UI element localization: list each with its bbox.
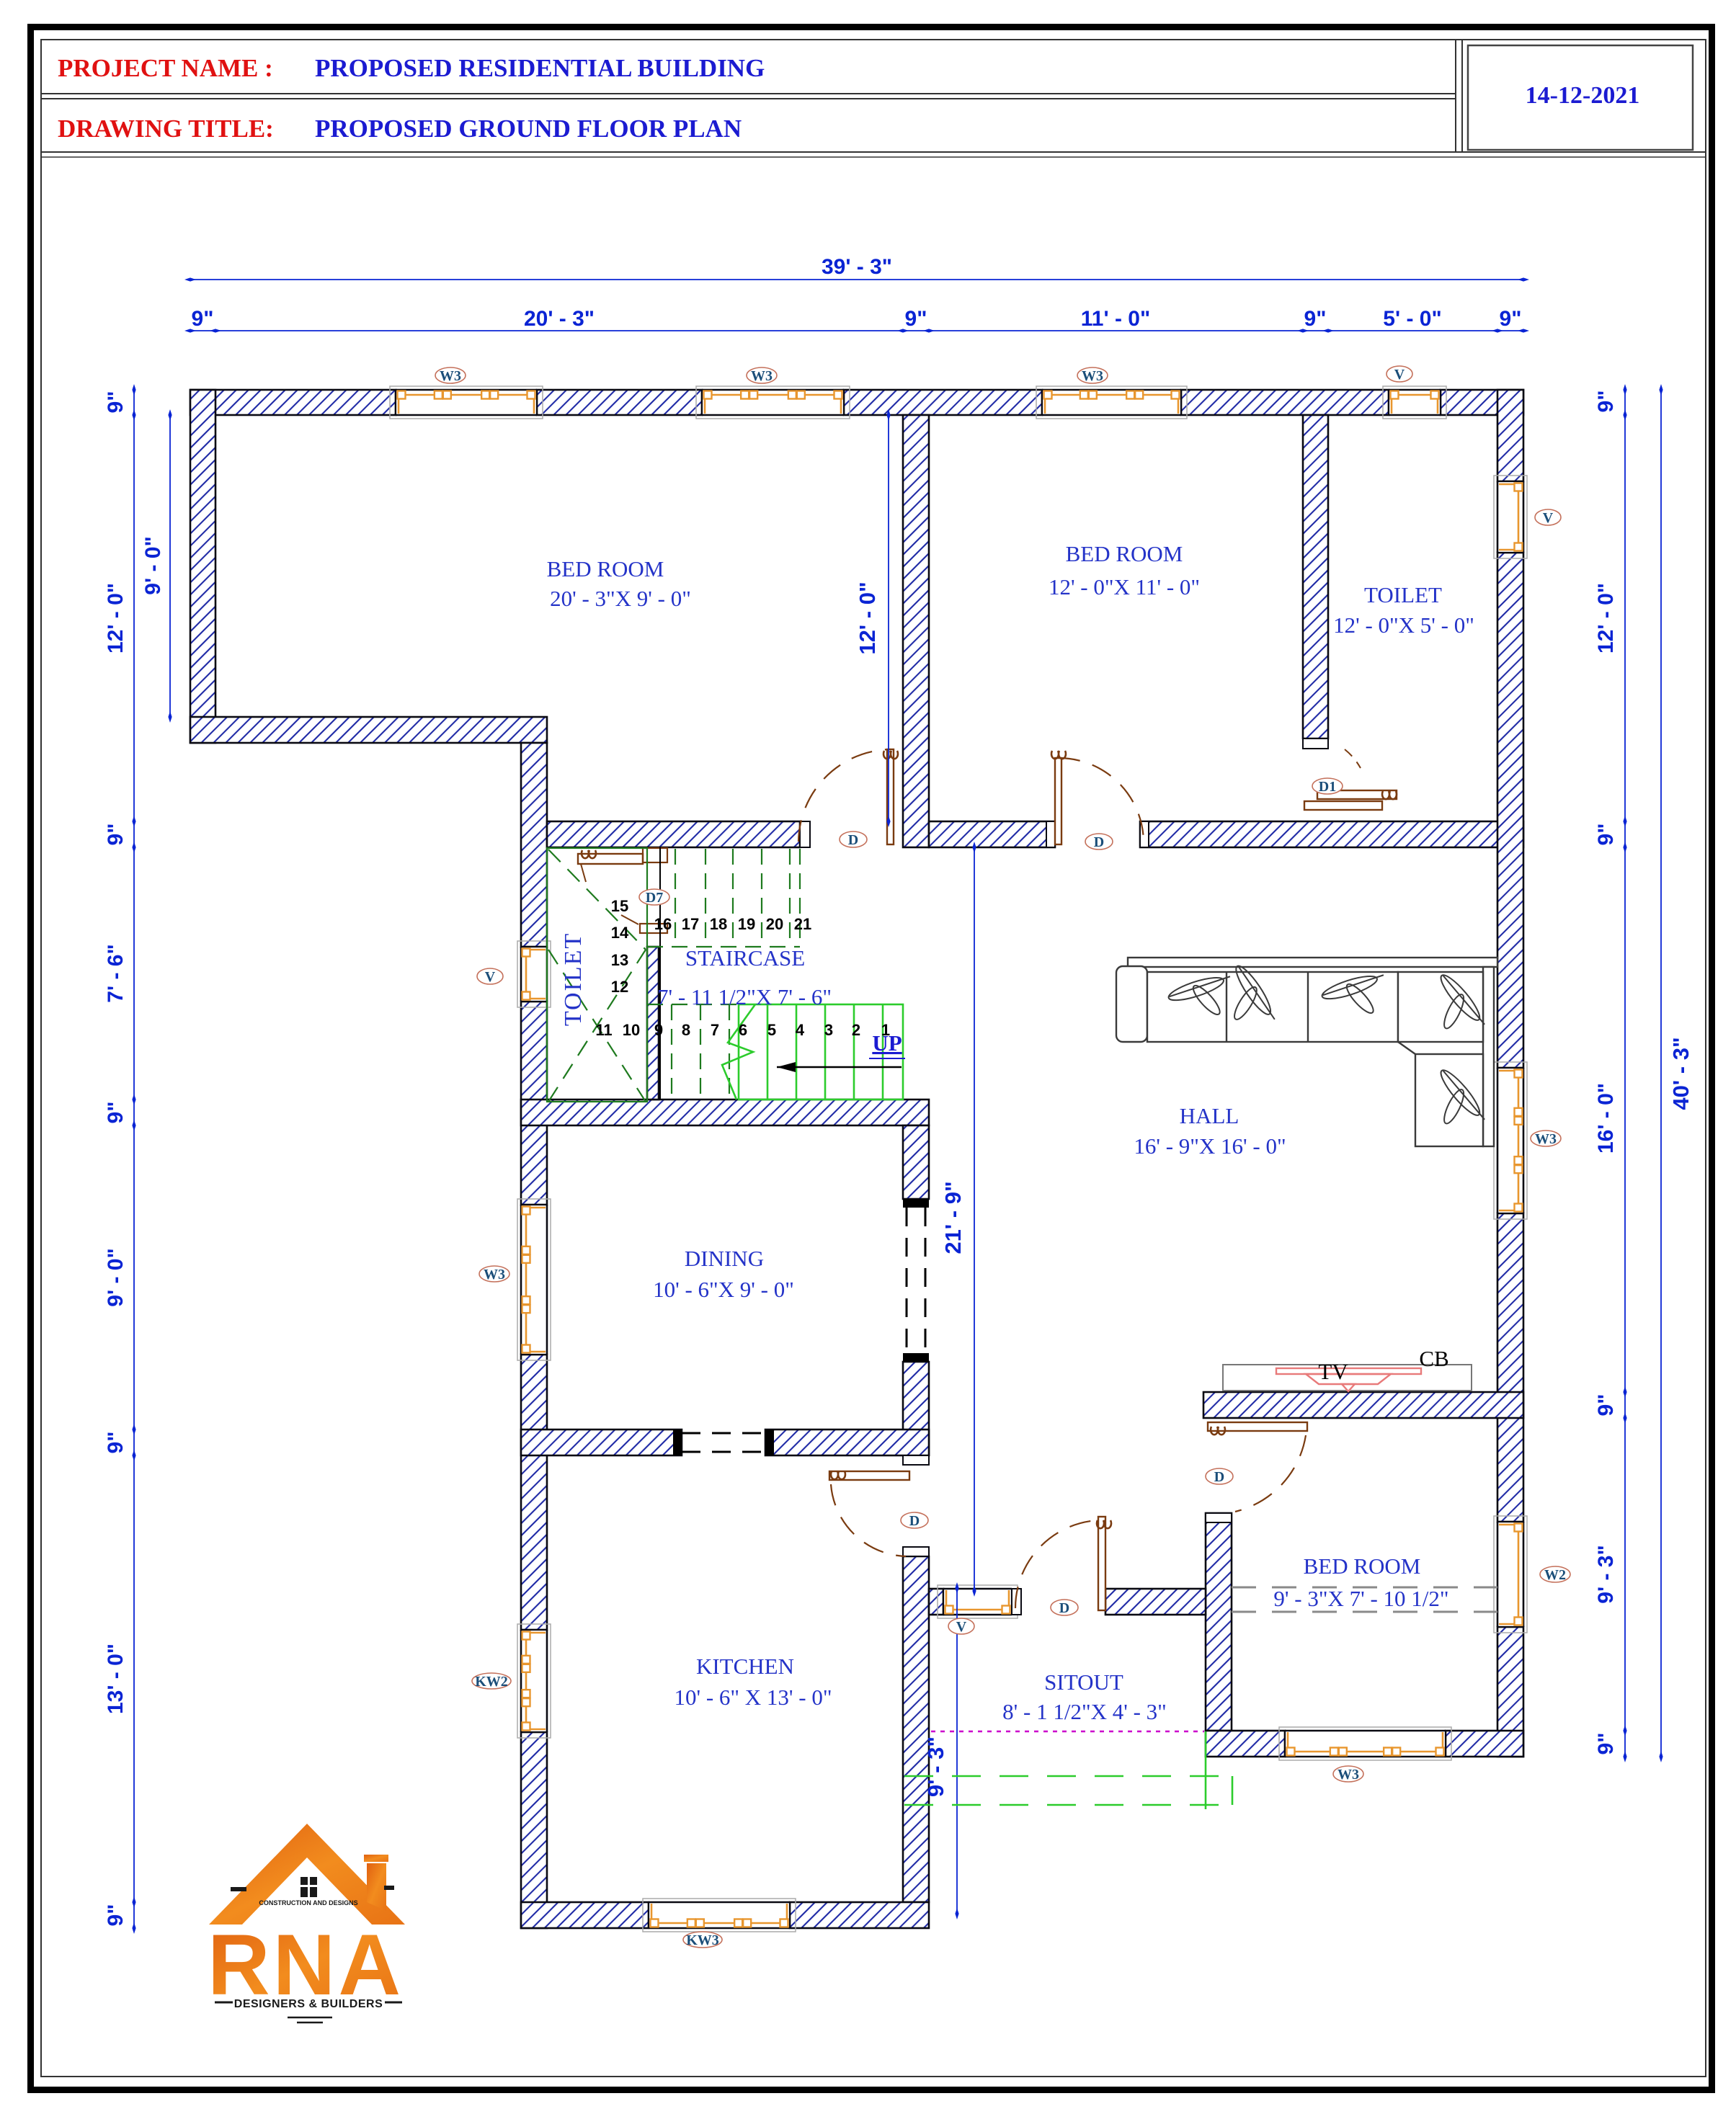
- svg-text:5' - 0": 5' - 0": [1383, 307, 1441, 331]
- svg-text:W3: W3: [1082, 368, 1103, 384]
- svg-text:DINING: DINING: [685, 1246, 764, 1271]
- svg-text:V: V: [1394, 367, 1405, 383]
- svg-text:12' - 0"X 11' - 0": 12' - 0"X 11' - 0": [1049, 574, 1200, 599]
- svg-text:7: 7: [711, 1021, 719, 1039]
- svg-text:W3: W3: [440, 368, 461, 384]
- svg-text:12' - 0": 12' - 0": [1594, 583, 1618, 654]
- svg-text:D: D: [1094, 834, 1104, 850]
- svg-text:14-12-2021: 14-12-2021: [1526, 82, 1640, 109]
- svg-text:9": 9": [104, 1102, 128, 1124]
- svg-text:W3: W3: [1337, 1767, 1359, 1783]
- svg-text:20' - 3"X 9' - 0": 20' - 3"X 9' - 0": [550, 586, 691, 611]
- svg-text:11' - 0": 11' - 0": [1081, 307, 1150, 331]
- svg-text:7' - 6": 7' - 6": [104, 944, 128, 1002]
- svg-text:12' - 0": 12' - 0": [104, 583, 128, 654]
- svg-text:V: V: [956, 1619, 967, 1635]
- svg-text:21: 21: [794, 915, 811, 933]
- svg-text:PROPOSED RESIDENTIAL BUILDING: PROPOSED RESIDENTIAL BUILDING: [315, 54, 765, 82]
- svg-text:13' - 0": 13' - 0": [104, 1644, 128, 1714]
- svg-text:8' - 1 1/2"X 4' - 3": 8' - 1 1/2"X 4' - 3": [1002, 1699, 1167, 1724]
- svg-text:9": 9": [104, 1432, 128, 1454]
- svg-text:9": 9": [1594, 1394, 1618, 1417]
- svg-text:18: 18: [710, 915, 727, 933]
- svg-text:12' - 0": 12' - 0": [855, 581, 880, 654]
- svg-text:14: 14: [611, 924, 629, 942]
- svg-text:9": 9": [104, 391, 128, 414]
- svg-text:BED ROOM: BED ROOM: [547, 556, 664, 581]
- svg-text:3: 3: [824, 1021, 833, 1039]
- svg-text:9": 9": [1304, 307, 1327, 331]
- svg-text:W3: W3: [751, 368, 773, 384]
- svg-text:9' - 3": 9' - 3": [923, 1736, 948, 1797]
- svg-text:TOILET: TOILET: [560, 932, 587, 1026]
- svg-text:10: 10: [623, 1021, 640, 1039]
- svg-text:9' - 3": 9' - 3": [1594, 1545, 1618, 1603]
- svg-text:D: D: [909, 1513, 920, 1529]
- svg-text:PROJECT NAME :: PROJECT NAME :: [58, 54, 273, 82]
- svg-text:16' - 9"X 16' - 0": 16' - 9"X 16' - 0": [1134, 1133, 1286, 1159]
- svg-text:7' - 11 1/2"X 7' - 6": 7' - 11 1/2"X 7' - 6": [657, 984, 832, 1009]
- svg-text:9": 9": [905, 307, 927, 331]
- svg-text:16: 16: [654, 915, 672, 933]
- svg-text:4: 4: [796, 1021, 805, 1039]
- svg-text:W2: W2: [1544, 1567, 1566, 1583]
- svg-text:D: D: [848, 832, 858, 848]
- svg-text:DRAWING TITLE:: DRAWING TITLE:: [58, 115, 274, 143]
- svg-text:D1: D1: [1319, 779, 1336, 795]
- svg-text:19: 19: [738, 915, 755, 933]
- svg-text:KITCHEN: KITCHEN: [696, 1654, 794, 1679]
- svg-text:D: D: [1059, 1600, 1069, 1616]
- svg-text:UP: UP: [872, 1030, 902, 1056]
- svg-text:12: 12: [611, 978, 628, 996]
- svg-text:D: D: [1214, 1469, 1224, 1485]
- svg-text:W3: W3: [1535, 1131, 1557, 1147]
- svg-text:CONSTRUCTION AND DESIGNS: CONSTRUCTION AND DESIGNS: [259, 1899, 357, 1906]
- svg-text:CB: CB: [1419, 1346, 1448, 1371]
- svg-text:10' - 6" X 13' - 0": 10' - 6" X 13' - 0": [674, 1685, 832, 1710]
- svg-text:9' - 0": 9' - 0": [141, 536, 165, 594]
- svg-text:9: 9: [654, 1021, 663, 1039]
- svg-text:STAIRCASE: STAIRCASE: [685, 945, 805, 971]
- svg-text:DESIGNERS & BUILDERS: DESIGNERS & BUILDERS: [234, 1998, 383, 2010]
- svg-text:21' - 9": 21' - 9": [940, 1181, 966, 1254]
- svg-text:9": 9": [1594, 1733, 1618, 1755]
- svg-text:15: 15: [611, 897, 628, 915]
- svg-text:PROPOSED GROUND FLOOR PLAN: PROPOSED GROUND FLOOR PLAN: [315, 115, 742, 143]
- svg-text:12' - 0"X 5' - 0": 12' - 0"X 5' - 0": [1333, 612, 1474, 638]
- svg-text:10' - 6"X 9' - 0": 10' - 6"X 9' - 0": [653, 1277, 794, 1302]
- svg-text:BED ROOM: BED ROOM: [1304, 1553, 1421, 1579]
- svg-text:20: 20: [766, 915, 783, 933]
- svg-text:16' - 0": 16' - 0": [1594, 1083, 1618, 1154]
- svg-text:39' - 3": 39' - 3": [822, 255, 892, 279]
- svg-text:W3: W3: [484, 1267, 505, 1283]
- svg-text:17: 17: [682, 915, 699, 933]
- svg-text:5: 5: [767, 1021, 776, 1039]
- svg-text:11: 11: [595, 1021, 612, 1039]
- svg-text:13: 13: [611, 951, 628, 969]
- svg-text:6: 6: [739, 1021, 747, 1039]
- svg-text:9": 9": [192, 307, 214, 331]
- svg-text:BED ROOM: BED ROOM: [1066, 541, 1183, 566]
- svg-text:V: V: [485, 969, 496, 985]
- svg-text:8: 8: [682, 1021, 690, 1039]
- svg-text:9' - 0": 9' - 0": [104, 1248, 128, 1306]
- svg-text:2: 2: [852, 1021, 860, 1039]
- svg-text:HALL: HALL: [1180, 1103, 1239, 1128]
- svg-text:TOILET: TOILET: [1364, 582, 1442, 607]
- svg-text:9": 9": [104, 824, 128, 846]
- svg-text:TV: TV: [1318, 1359, 1348, 1384]
- svg-text:9' - 3"X 7' - 10 1/2": 9' - 3"X 7' - 10 1/2": [1273, 1586, 1448, 1611]
- svg-text:9": 9": [104, 1904, 128, 1927]
- svg-text:40' - 3": 40' - 3": [1668, 1037, 1693, 1110]
- svg-text:20' - 3": 20' - 3": [524, 307, 595, 331]
- svg-text:D7: D7: [646, 890, 663, 906]
- svg-text:V: V: [1543, 510, 1554, 526]
- svg-text:9": 9": [1594, 391, 1618, 413]
- svg-text:SITOUT: SITOUT: [1044, 1669, 1123, 1695]
- svg-text:9": 9": [1500, 307, 1522, 331]
- svg-text:KW2: KW2: [475, 1674, 508, 1690]
- svg-text:9": 9": [1594, 824, 1618, 846]
- svg-text:KW3: KW3: [686, 1932, 719, 1948]
